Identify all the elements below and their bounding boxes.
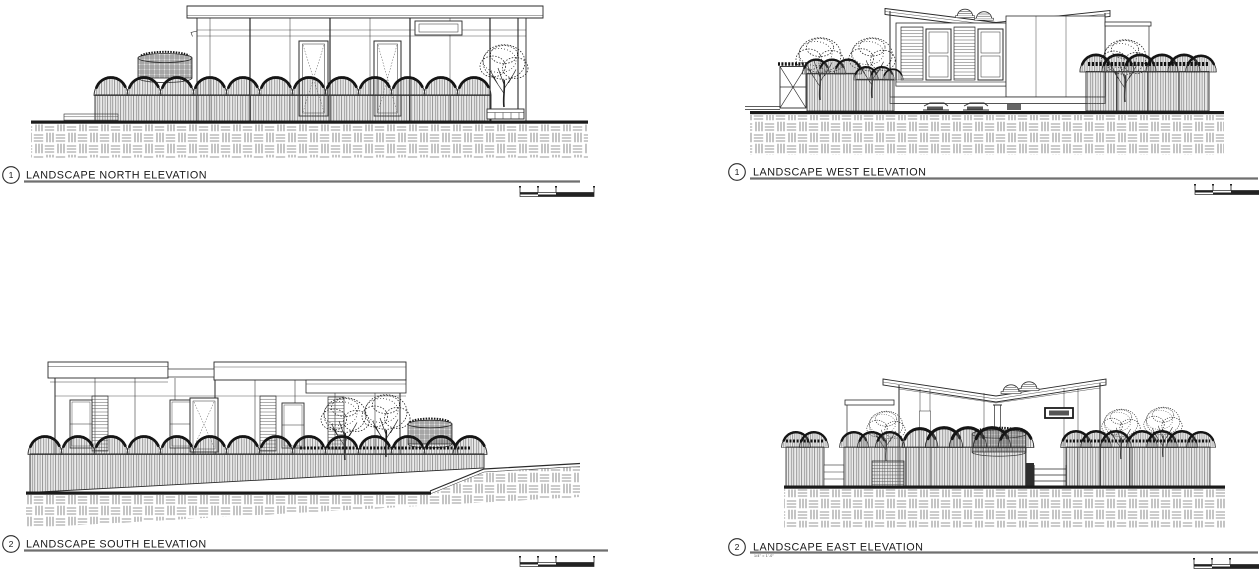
roof-vent-icon (1019, 382, 1039, 391)
south-planting-row (28, 436, 487, 492)
west-patio-furniture (923, 103, 1021, 110)
ground-hatch (750, 115, 1224, 155)
detail-number: 1 (9, 170, 14, 180)
east-ground (784, 486, 1225, 528)
panel-title: LANDSCAPE WEST ELEVATION (753, 167, 926, 179)
south-title-block: 2 LANDSCAPE SOUTH ELEVATION (3, 536, 608, 567)
projecting-beam (845, 400, 894, 405)
drawing-sheet: 1 LANDSCAPE NORTH ELEVATION (0, 0, 1259, 569)
west-planting-right (1080, 55, 1216, 111)
detail-number: 2 (735, 542, 740, 552)
garden-gate (1034, 465, 1066, 486)
sash-window (926, 29, 951, 80)
graphic-scale-bar (1194, 184, 1259, 195)
graphic-scale-bar (519, 556, 595, 567)
north-title-block: 1 LANDSCAPE NORTH ELEVATION (3, 167, 595, 197)
west-title-block: 1 LANDSCAPE WEST ELEVATION (729, 164, 1259, 195)
chimney-pipe (993, 405, 1002, 430)
detail-number: 2 (9, 539, 14, 549)
gate-post (1026, 463, 1034, 486)
ground-hatch (784, 490, 1225, 528)
roof-vent-icon (975, 12, 994, 21)
panel-title: LANDSCAPE NORTH ELEVATION (26, 170, 207, 182)
north-ground (31, 114, 588, 158)
storage-box (872, 461, 904, 486)
ground-hatch (31, 125, 588, 158)
south-elevation-drawing: 2 LANDSCAPE SOUTH ELEVATION (0, 340, 620, 569)
north-clerestory-window (415, 21, 462, 35)
panel-landscape-east-elevation: 2 LANDSCAPE EAST ELEVATION 1/4" = 1'-0" (720, 355, 1259, 569)
graphic-scale-bar (1193, 558, 1259, 569)
north-elevation-drawing: 1 LANDSCAPE NORTH ELEVATION (0, 0, 620, 230)
graphic-scale-bar (519, 186, 595, 197)
east-elevation-drawing: 2 LANDSCAPE EAST ELEVATION 1/4" = 1'-0" (720, 355, 1259, 569)
louver-panel (901, 27, 923, 80)
louver-panel (954, 27, 975, 80)
roof-vent-icon (1001, 385, 1021, 394)
panel-title: LANDSCAPE SOUTH ELEVATION (26, 539, 207, 551)
scale-note: 1/4" = 1'-0" (754, 554, 774, 558)
garden-gate (824, 465, 844, 486)
east-planting-row (782, 428, 1216, 486)
sash-window (978, 29, 1003, 80)
roof-vent-icon (956, 9, 975, 18)
detail-number: 1 (735, 167, 740, 177)
panel-landscape-south-elevation: 2 LANDSCAPE SOUTH ELEVATION (0, 340, 620, 569)
north-bench (487, 109, 524, 119)
panel-landscape-north-elevation: 1 LANDSCAPE NORTH ELEVATION (0, 0, 620, 230)
wall-sign (1045, 408, 1073, 418)
west-elevation-drawing: 1 LANDSCAPE WEST ELEVATION (720, 0, 1259, 210)
east-title-block: 2 LANDSCAPE EAST ELEVATION 1/4" = 1'-0" (729, 539, 1259, 569)
west-planting-left (802, 60, 903, 111)
projecting-beam (1105, 22, 1151, 26)
panel-landscape-west-elevation: 1 LANDSCAPE WEST ELEVATION (720, 0, 1259, 210)
west-ground (745, 107, 1224, 156)
